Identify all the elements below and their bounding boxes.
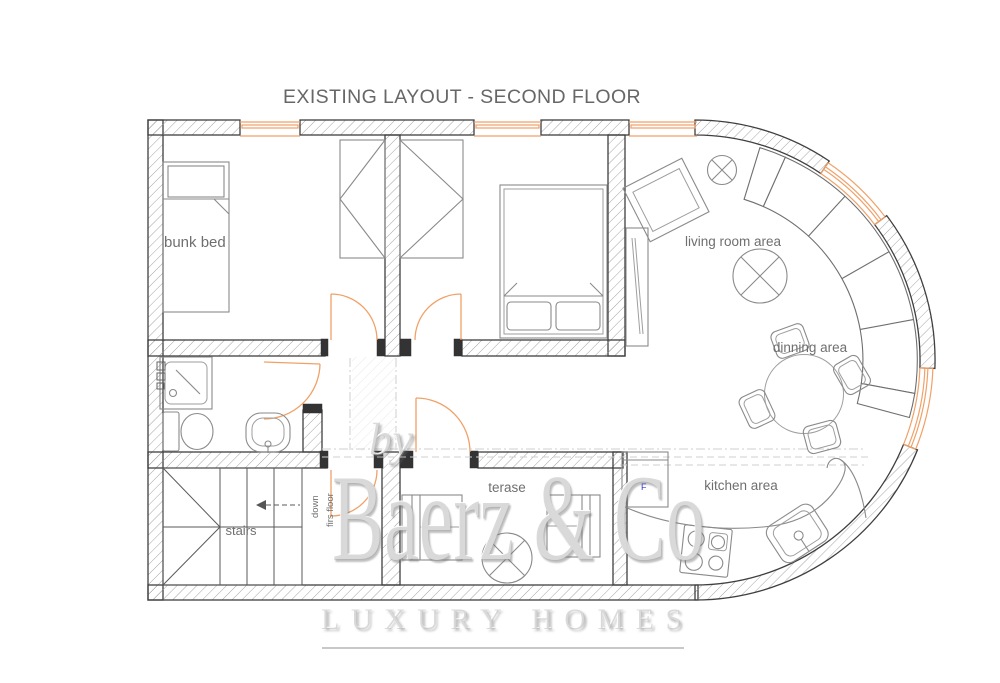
door-bedroom — [415, 294, 461, 340]
label-kitchen: kitchen area — [704, 478, 778, 493]
window-top-2 — [474, 122, 541, 136]
dining-chair — [737, 388, 777, 431]
armchair — [623, 158, 709, 241]
wardrobe-left — [340, 140, 385, 258]
label-stairs-first-floor: firs floor — [325, 493, 336, 527]
floor-plan-drawing: bunk bed living room area dinning area k… — [0, 0, 1000, 683]
label-living-room: living room area — [685, 234, 782, 249]
door-terrace — [416, 398, 470, 452]
terrace-table — [482, 533, 532, 583]
reference-lines — [322, 357, 871, 465]
wardrobe-right — [400, 140, 463, 258]
floor-plan-page: EXISTING LAYOUT - SECOND FLOOR — [0, 0, 1000, 683]
label-stairs-down: down — [310, 495, 321, 518]
kitchen-counter — [625, 458, 866, 528]
curved-sofa — [744, 148, 917, 418]
shower — [157, 357, 212, 409]
windows — [240, 122, 933, 449]
side-table — [708, 156, 737, 185]
watermark-divider — [322, 647, 684, 649]
window-top-1 — [240, 122, 300, 136]
label-stairs: stairs — [225, 523, 257, 538]
terrace-sofa — [402, 495, 462, 560]
fridge-mark: F — [641, 482, 647, 492]
coffee-table — [733, 249, 787, 303]
label-dining: dinning area — [773, 340, 848, 355]
door-bunk-room — [331, 294, 377, 340]
dining-chair — [802, 419, 842, 455]
fridge — [622, 452, 668, 507]
dining-table — [765, 355, 844, 434]
label-bunk-bed: bunk bed — [164, 234, 226, 251]
toilet — [163, 412, 213, 451]
tv-cabinet — [626, 228, 648, 346]
door-stairs — [331, 470, 377, 516]
terrace-sofa — [547, 495, 600, 557]
stove — [680, 525, 733, 578]
window-top-3 — [629, 122, 697, 136]
label-terrace: terase — [488, 480, 526, 495]
stairs-down-arrow-icon — [256, 500, 266, 510]
double-bed — [500, 185, 607, 338]
